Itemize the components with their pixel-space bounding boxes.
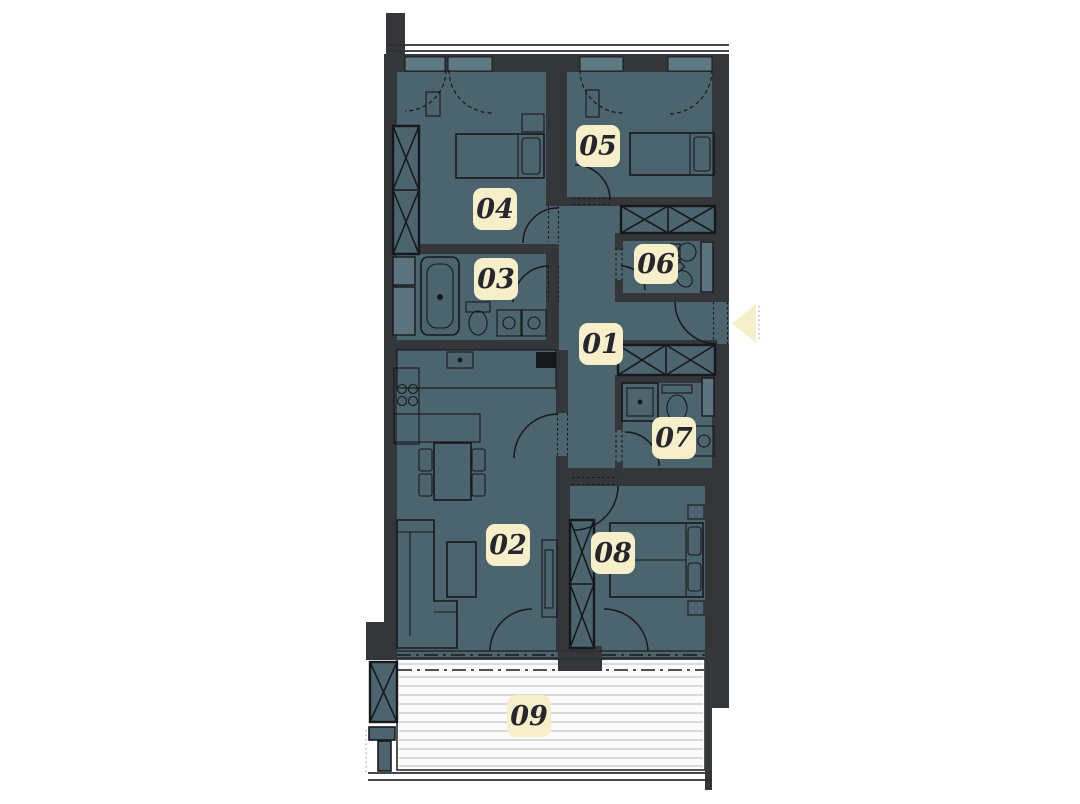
duct-06 (701, 242, 713, 292)
window-05-right (668, 57, 712, 71)
balcony-planter (369, 727, 395, 740)
room-label-08-text: 08 (594, 538, 632, 569)
room-label-06-text: 06 (637, 249, 675, 280)
wall-right-upper (712, 54, 729, 302)
room-label-08: 08 (591, 532, 635, 574)
room-label-04-text: 04 (476, 194, 514, 225)
wall-03-bottom (384, 340, 559, 350)
balcony-post (378, 741, 391, 771)
pillar-top-left (386, 13, 405, 56)
shower-07-drain (638, 400, 643, 405)
room-label-02-text: 02 (489, 530, 527, 561)
wall-corridor-08 (556, 468, 729, 486)
room-label-09: 09 (507, 695, 551, 737)
room-label-07: 07 (652, 417, 696, 459)
duct-03-lower (393, 287, 415, 335)
room-label-09-text: 09 (510, 701, 548, 732)
wall-corridor-02-upper (556, 350, 568, 413)
room-label-02: 02 (486, 524, 530, 566)
window-04-right (448, 57, 492, 71)
wall-04-05-divider (546, 54, 567, 206)
wall-07-left-lower (615, 462, 623, 472)
balcony-wall-right-lower (705, 708, 712, 790)
entrance-arrow-icon (732, 304, 756, 343)
duct-03-upper (393, 257, 415, 285)
wall-02-08-divider (556, 486, 570, 652)
room-label-01-text: 01 (582, 329, 620, 360)
balcony-wall-right-upper (705, 650, 729, 708)
duct-07 (702, 378, 714, 416)
bathtub-drain (437, 294, 443, 300)
room-label-03-text: 03 (477, 264, 515, 295)
entrance-marker (732, 304, 759, 343)
kitchen-appliance (536, 352, 556, 368)
room-label-03: 03 (474, 258, 518, 300)
floor-plan: 01 02 03 04 05 06 07 08 (0, 0, 1080, 804)
room-label-06: 06 (634, 244, 678, 284)
floor-plan-canvas: 01 02 03 04 05 06 07 08 (0, 0, 1080, 804)
room-label-01: 01 (579, 323, 623, 365)
room-label-07-text: 07 (655, 423, 693, 454)
wall-06-bottom (615, 293, 717, 302)
room-label-04: 04 (473, 188, 517, 230)
window-04-left (405, 57, 445, 71)
window-05-left (580, 57, 623, 71)
balcony-bottom-rail (368, 773, 712, 780)
facade-trim-lines (386, 45, 729, 51)
room-label-05-text: 05 (579, 131, 617, 162)
wall-right-lower (705, 486, 729, 652)
kitchen-faucet (458, 358, 463, 363)
room-label-05: 05 (576, 125, 620, 167)
